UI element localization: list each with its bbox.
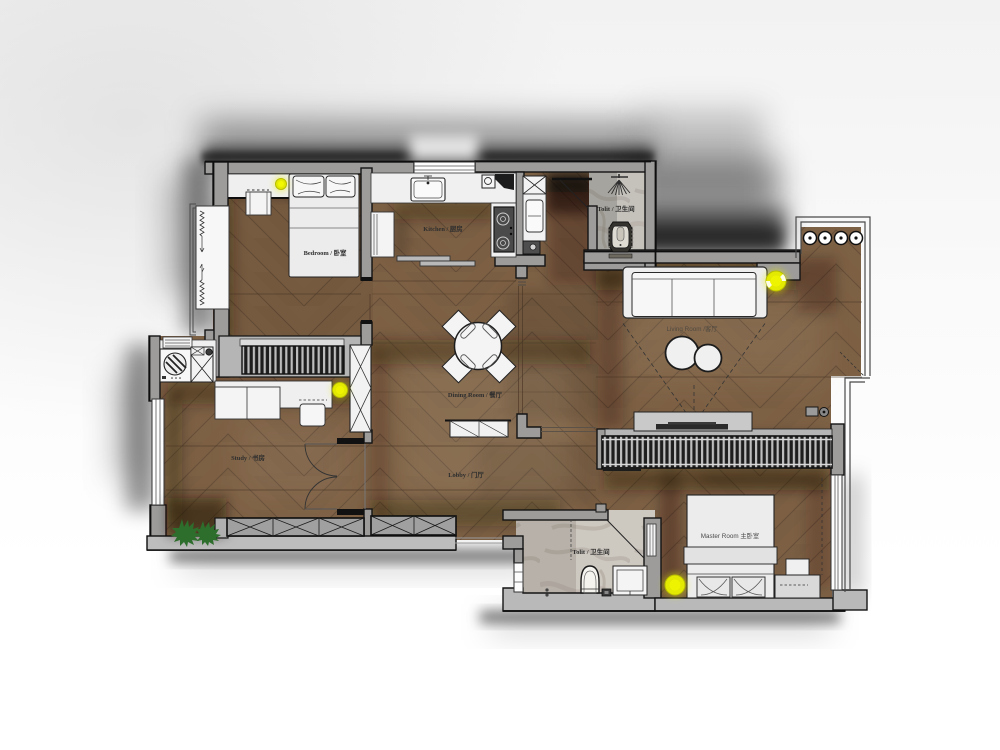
svg-text:Tolit / 卫生间: Tolit / 卫生间 — [597, 204, 635, 213]
svg-text:Living Room /客厅: Living Room /客厅 — [666, 324, 717, 333]
svg-text:Lobby / 门厅: Lobby / 门厅 — [448, 470, 484, 479]
svg-text:Kitchen / 厨房: Kitchen / 厨房 — [423, 224, 463, 233]
svg-text:Tolit / 卫生间: Tolit / 卫生间 — [572, 547, 610, 556]
svg-text:Study / 书房: Study / 书房 — [231, 453, 265, 462]
svg-text:Dining Room / 餐厅: Dining Room / 餐厅 — [448, 390, 503, 399]
svg-text:Master Room 主卧室: Master Room 主卧室 — [701, 531, 759, 540]
svg-text:Bedroom / 卧室: Bedroom / 卧室 — [304, 248, 347, 257]
